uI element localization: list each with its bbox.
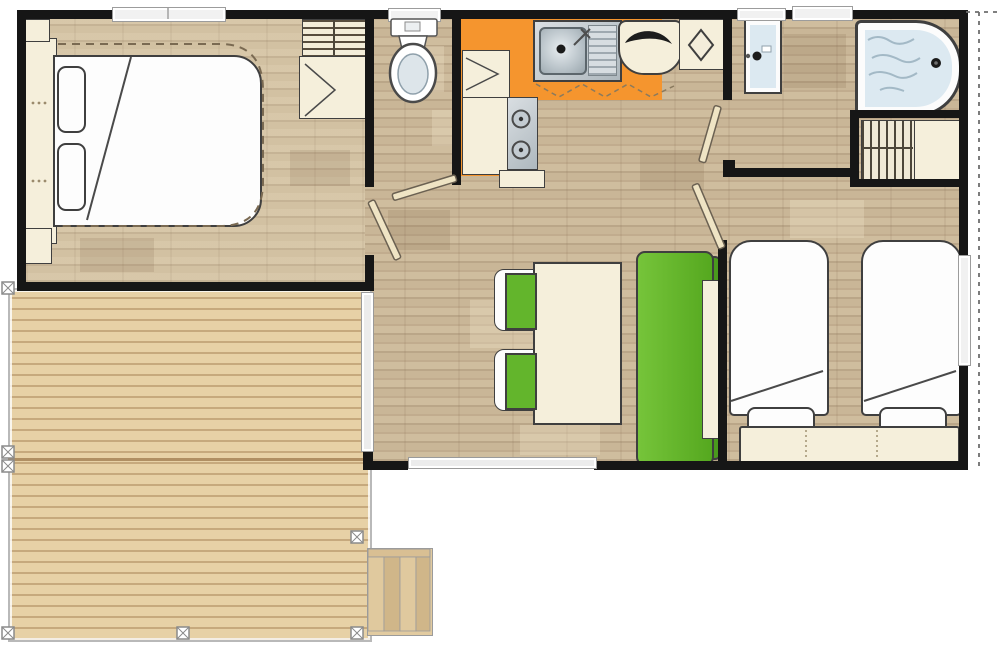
wall-shelf-bottom — [850, 179, 968, 187]
bedroom-cabinet — [299, 56, 367, 119]
bed-pillow — [57, 66, 86, 133]
wardrobe-divider — [333, 20, 335, 55]
floor-plank-patch — [290, 150, 350, 186]
window-wc — [388, 8, 441, 22]
wall-bath-door-jamb — [723, 160, 735, 168]
window-twin-bedroom — [958, 255, 971, 366]
kitchen-draining-board — [588, 25, 617, 76]
towel-rack-bar — [862, 147, 913, 149]
sliding-door-deck — [361, 292, 374, 452]
single-bed — [861, 240, 962, 416]
bedroom-nightstand — [22, 19, 50, 42]
dining-table — [533, 262, 622, 425]
wall-wc-right — [452, 19, 461, 185]
wall-bedroom-door-jamb — [365, 255, 374, 282]
wall-bedroom-hall — [365, 19, 374, 187]
wall-right — [959, 10, 968, 470]
floor-plan — [0, 0, 1000, 654]
floor-plank-patch — [784, 34, 846, 88]
floor-plank-patch — [404, 46, 444, 92]
dining-chair — [505, 273, 537, 330]
floor-plank-patch — [80, 238, 154, 272]
bedroom-nightstand — [22, 228, 52, 264]
kitchen-stand — [499, 170, 545, 188]
bathtub — [855, 20, 962, 117]
deck-stairs — [367, 548, 433, 636]
wall-left — [17, 10, 26, 291]
kitchen-sink-bowl — [539, 27, 587, 75]
window-bedroom — [112, 7, 226, 22]
kitchen-corner-cabinet — [462, 50, 510, 99]
deck-terrace — [8, 288, 372, 642]
floor-plank-patch — [388, 210, 450, 250]
wall-tub-left — [850, 110, 859, 187]
deck-divider-line — [8, 458, 368, 461]
sliding-door-living — [408, 457, 597, 469]
kitchen-base-cabinet — [462, 97, 510, 175]
window-bathtub — [792, 6, 853, 21]
floor-plank-patch — [520, 425, 600, 455]
wall-tub-bottom — [850, 110, 968, 118]
floor-plank-patch — [640, 150, 704, 190]
floor-plank-patch — [790, 200, 864, 238]
single-bed — [729, 240, 829, 416]
kitchen-hob — [507, 97, 538, 170]
wall-kitchen-bath — [723, 19, 732, 100]
wall-twin-left — [718, 240, 727, 461]
wall-bottom — [594, 461, 968, 470]
boundary-dashes — [966, 12, 999, 470]
wall-bath-bottom — [723, 168, 859, 177]
wall-bottom — [363, 461, 408, 470]
window-divider — [167, 8, 169, 19]
window-basin — [737, 8, 786, 21]
kitchen-fridge — [618, 20, 683, 75]
washbasin — [744, 19, 782, 94]
bed-pillow — [57, 143, 86, 211]
dining-chair — [505, 353, 537, 410]
twin-bedroom-bench — [739, 426, 960, 465]
bathroom-towel-rack — [861, 120, 916, 180]
kitchen-vent-cabinet — [679, 19, 726, 70]
bathroom-cabinet — [914, 120, 960, 180]
wall-bedroom-bottom — [17, 282, 374, 291]
